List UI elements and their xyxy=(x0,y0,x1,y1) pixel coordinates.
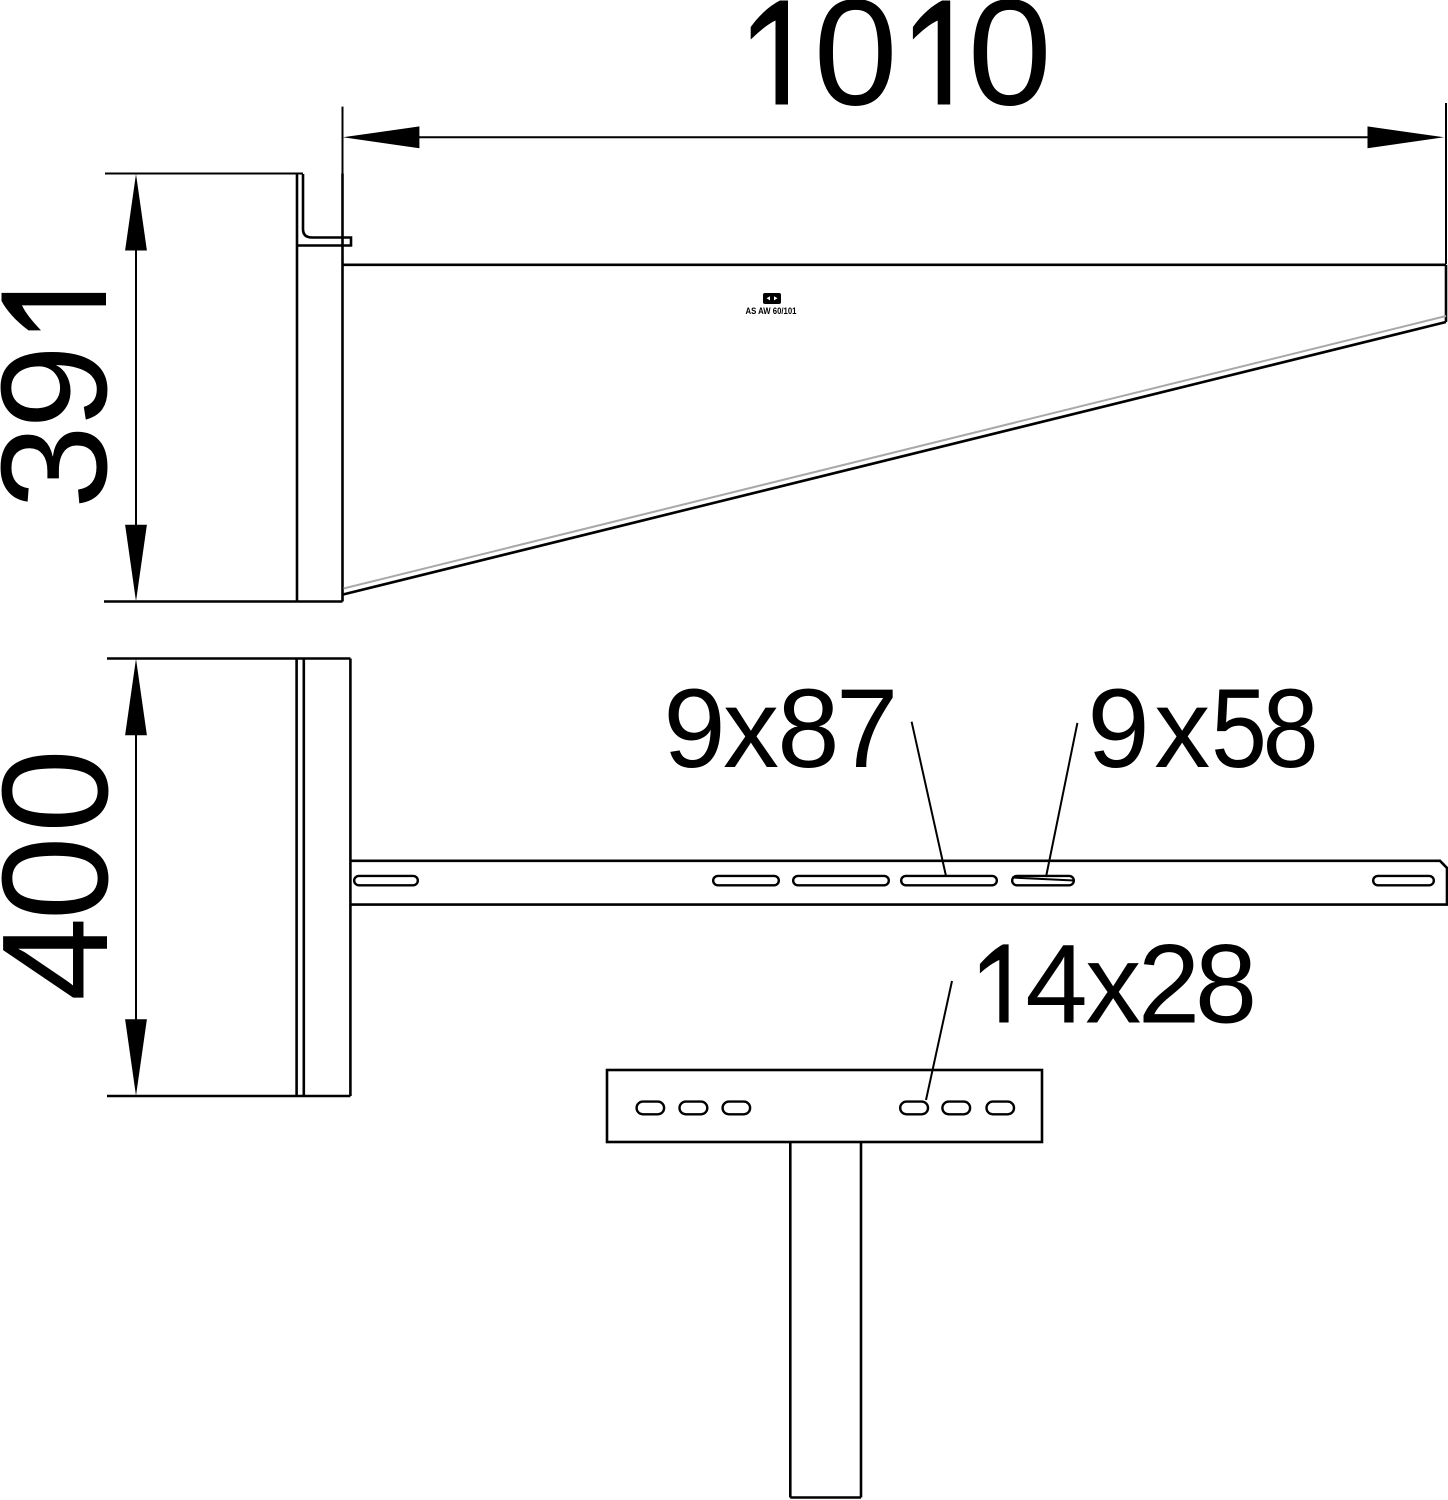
svg-text:0: 0 xyxy=(814,0,898,137)
svg-text:0: 0 xyxy=(0,749,139,833)
svg-text:x: x xyxy=(1154,666,1210,791)
svg-text:9: 9 xyxy=(0,345,138,429)
svg-text:x: x xyxy=(1085,922,1141,1047)
svg-text:0: 0 xyxy=(968,0,1052,137)
svg-text:5: 5 xyxy=(1211,666,1267,791)
svg-text:7: 7 xyxy=(836,666,898,791)
svg-text:4: 4 xyxy=(1025,922,1087,1047)
svg-text:8: 8 xyxy=(777,666,839,791)
svg-text:2: 2 xyxy=(1138,922,1200,1047)
svg-text:0: 0 xyxy=(0,836,139,920)
svg-text:AS AW 60/101: AS AW 60/101 xyxy=(746,306,798,317)
svg-text:9: 9 xyxy=(1087,666,1149,791)
svg-text:x: x xyxy=(723,666,779,791)
svg-text:9: 9 xyxy=(663,666,725,791)
svg-text:8: 8 xyxy=(1263,666,1319,791)
svg-text:4: 4 xyxy=(0,917,139,1001)
svg-text:3: 3 xyxy=(0,425,138,509)
svg-text:8: 8 xyxy=(1195,922,1257,1047)
